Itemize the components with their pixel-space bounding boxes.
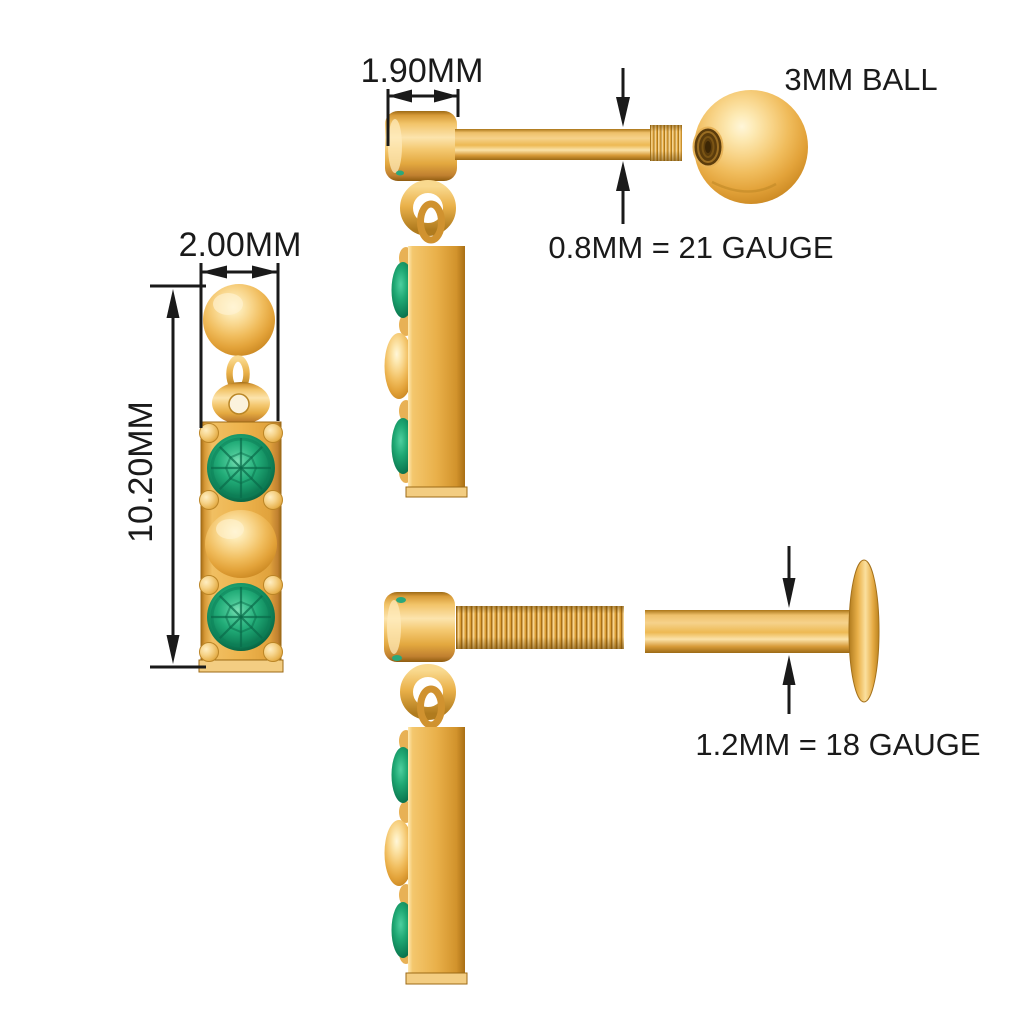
prong [264, 424, 283, 443]
dangle-bar-side [385, 246, 468, 497]
prong [200, 491, 219, 510]
emerald-stone-bottom [207, 583, 275, 651]
thread-shading [456, 606, 624, 649]
dim-label: 2.00MM [179, 226, 302, 264]
gauge-label: 0.8MM = 21 GAUGE [548, 230, 833, 265]
bar-base-edge [406, 973, 467, 984]
bead-highlight [216, 519, 244, 539]
prong [264, 643, 283, 662]
bead-highlight [213, 293, 243, 315]
prong [264, 491, 283, 510]
emerald-glint [396, 171, 404, 176]
emerald-facets [211, 438, 271, 498]
prong [200, 576, 219, 595]
head-highlight [387, 600, 401, 654]
ball-end [694, 90, 809, 204]
post-21-gauge [455, 129, 652, 160]
bar-base-edge [406, 487, 467, 497]
bail-hole [229, 394, 249, 414]
dim-label-vertical: 10.20MM [122, 401, 160, 543]
dim-label: 1.90MM [361, 52, 484, 90]
bar-side-face [408, 727, 465, 973]
drop-bar-base [199, 660, 283, 672]
labret-flat-disc [849, 560, 879, 702]
emerald-facets [211, 587, 271, 647]
prong [264, 576, 283, 595]
emerald-glint [396, 597, 406, 603]
dangle-bar-side [385, 727, 468, 984]
hole-center [705, 141, 711, 153]
emerald-stone-top [207, 434, 275, 502]
bar-side-face [408, 246, 465, 487]
ball-size-label: 3MM BALL [784, 62, 937, 97]
post-18-gauge [645, 610, 851, 653]
middle-gold-bead [205, 510, 277, 578]
top-gold-bead [203, 284, 275, 356]
head-highlight [388, 119, 402, 173]
diagram-canvas: 1.90MM 0.8MM = 21 GAUGE 3MM BALL 2.00MM … [0, 0, 1024, 1024]
thread-shading [650, 125, 682, 161]
diagram-page: 1.90MM 0.8MM = 21 GAUGE 3MM BALL 2.00MM … [0, 0, 1024, 1024]
gauge-label: 1.2MM = 18 GAUGE [695, 727, 980, 762]
emerald-glint [392, 655, 402, 661]
prong [200, 643, 219, 662]
